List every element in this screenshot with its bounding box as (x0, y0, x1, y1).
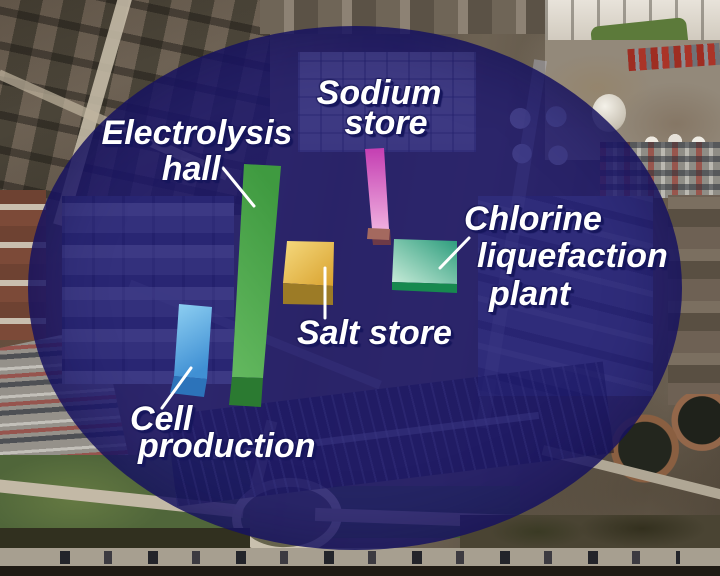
block-chlorine-liquefaction-plant (392, 239, 457, 293)
block-cell-production (170, 304, 212, 397)
block-electrolysis-hall (229, 164, 281, 407)
label-salt-store: Salt store (297, 316, 452, 350)
annotated-aerial-figure: Electrolysis hall Sodium store Chlorine … (0, 0, 720, 576)
photo-small-red-building (367, 228, 390, 240)
label-chlorine-plant-line1: Chlorine (464, 202, 602, 236)
label-electrolysis-hall-line1: Electrolysis (102, 116, 293, 150)
label-chlorine-plant-line2: liquefaction (477, 239, 668, 273)
label-sodium-store-line2: store (344, 106, 427, 140)
label-electrolysis-hall-line2: hall (162, 152, 221, 186)
label-chlorine-plant-line3: plant (489, 277, 570, 311)
label-cell-production-line2: production (138, 429, 316, 463)
